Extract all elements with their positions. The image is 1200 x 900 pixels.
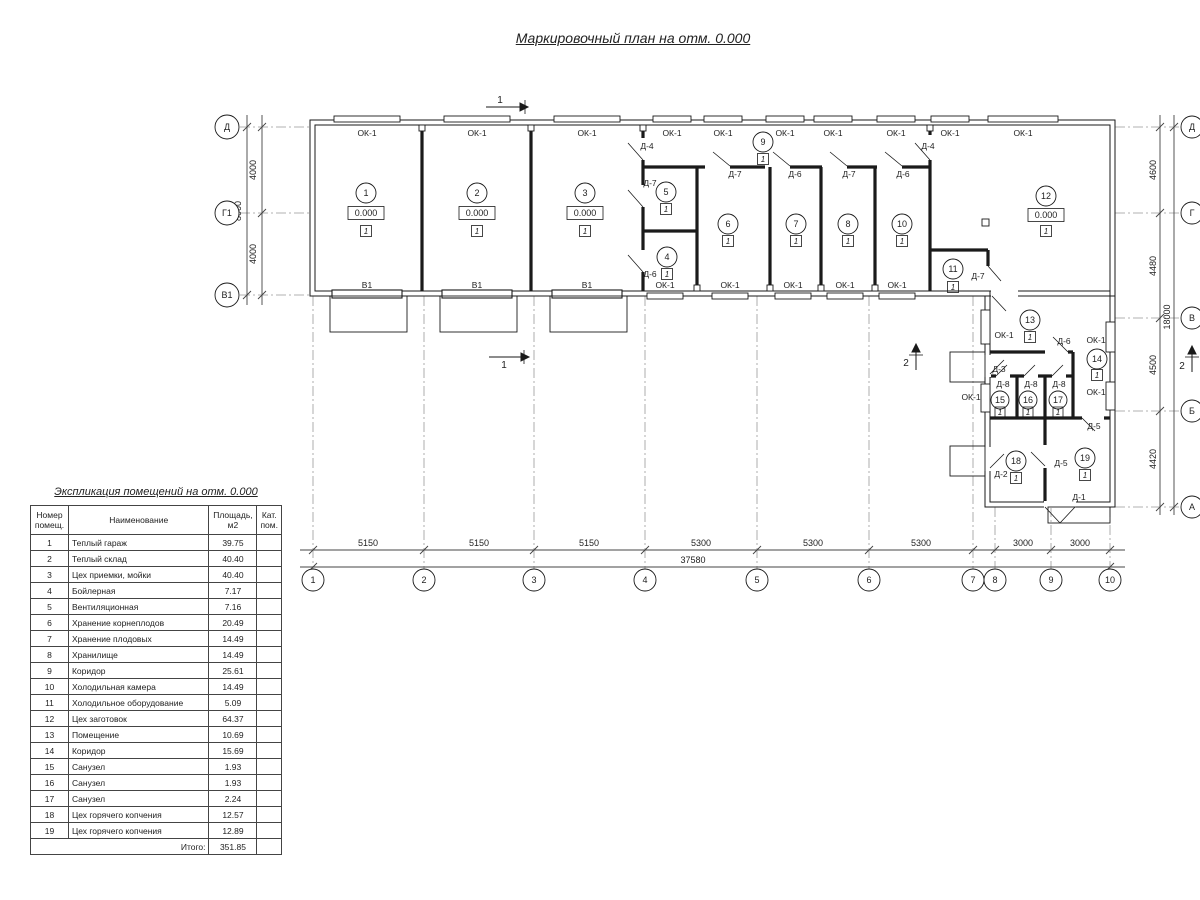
table-cell: Цех приемки, мойки <box>68 567 209 583</box>
table-cell: 12.89 <box>209 823 257 839</box>
table-row: 7Хранение плодовых14.49 <box>31 631 282 647</box>
table-cell: 15.69 <box>209 743 257 759</box>
svg-text:10: 10 <box>1105 575 1115 585</box>
svg-text:Б: Б <box>1189 406 1195 416</box>
window-label: ОК-1 <box>886 128 905 138</box>
window-label: ОК-1 <box>1086 387 1105 397</box>
svg-text:1: 1 <box>1044 227 1048 236</box>
gate-label: В1 <box>362 280 373 290</box>
svg-text:1: 1 <box>1083 471 1087 480</box>
table-cell <box>257 775 282 791</box>
svg-text:5150: 5150 <box>358 538 378 548</box>
door-label: Д-1 <box>1072 492 1086 502</box>
dimension-lines <box>243 115 1178 571</box>
table-cell: Санузел <box>68 775 209 791</box>
window-label: ОК-1 <box>994 330 1013 340</box>
table-cell: 7 <box>31 631 69 647</box>
window-label: ОК-1 <box>940 128 959 138</box>
table-row: 13Помещение10.69 <box>31 727 282 743</box>
table-cell: 7.17 <box>209 583 257 599</box>
door-label: Д-8 <box>1052 379 1066 389</box>
table-row: 9Коридор25.61 <box>31 663 282 679</box>
section-label: 2 <box>1179 361 1185 372</box>
svg-text:В1: В1 <box>221 290 232 300</box>
table-cell <box>257 807 282 823</box>
table-cell <box>257 647 282 663</box>
svg-text:5: 5 <box>754 575 759 585</box>
table-cell: 10.69 <box>209 727 257 743</box>
table-cell: Вентиляционная <box>68 599 209 615</box>
window-label: ОК-1 <box>835 280 854 290</box>
room-number: 13 <box>1025 315 1035 325</box>
room-number: 11 <box>948 264 957 274</box>
door-label: Д-6 <box>643 269 657 279</box>
svg-text:1: 1 <box>998 408 1002 417</box>
svg-text:1: 1 <box>1014 474 1018 483</box>
col-header-number: Номер помещ. <box>31 506 69 535</box>
gate-label: В1 <box>582 280 593 290</box>
table-cell: 5.09 <box>209 695 257 711</box>
elevation-value: 0.000 <box>1035 210 1058 220</box>
elevation-value: 0.000 <box>466 208 489 218</box>
table-cell: Санузел <box>68 791 209 807</box>
room-number: 8 <box>845 219 850 229</box>
svg-text:1: 1 <box>664 205 668 214</box>
door-label: Д-4 <box>640 141 654 151</box>
axis-bubbles: 1 2 3 4 5 6 7 8 9 10 Д Г В Б А Д Г1 В1 <box>215 115 1200 591</box>
window-label: ОК-1 <box>357 128 376 138</box>
table-cell <box>257 615 282 631</box>
svg-text:4600: 4600 <box>1148 160 1158 180</box>
table-cell <box>257 711 282 727</box>
table-row: 8Хранилище14.49 <box>31 647 282 663</box>
svg-text:5300: 5300 <box>803 538 823 548</box>
door-label: Д-7 <box>842 169 856 179</box>
table-cell: 25.61 <box>209 663 257 679</box>
table-cell: 11 <box>31 695 69 711</box>
svg-text:4000: 4000 <box>248 160 258 180</box>
table-row: 10Холодильная камера14.49 <box>31 679 282 695</box>
table-cell: 15 <box>31 759 69 775</box>
room-number: 18 <box>1011 456 1021 466</box>
table-cell: Цех горячего копчения <box>68 807 209 823</box>
room-markers <box>356 132 1107 471</box>
building-walls <box>310 120 1115 507</box>
svg-text:3000: 3000 <box>1070 538 1090 548</box>
table-cell: Санузел <box>68 759 209 775</box>
section-label: 1 <box>497 95 503 106</box>
col-header-category: Кат. пом. <box>257 506 282 535</box>
window-label: ОК-1 <box>961 392 980 402</box>
svg-text:1: 1 <box>1028 333 1032 342</box>
table-row: 18Цех горячего копчения12.57 <box>31 807 282 823</box>
dimension-labels: 5150 5150 5150 5300 5300 5300 3000 3000 … <box>233 160 1172 565</box>
table-cell <box>257 759 282 775</box>
table-row: 1Теплый гараж39.75 <box>31 535 282 551</box>
table-cell: Хранение плодовых <box>68 631 209 647</box>
table-cell: 40.40 <box>209 567 257 583</box>
svg-text:3000: 3000 <box>1013 538 1033 548</box>
svg-text:4: 4 <box>642 575 647 585</box>
svg-text:5150: 5150 <box>579 538 599 548</box>
table-cell: Помещение <box>68 727 209 743</box>
table-cell: Холодильная камера <box>68 679 209 695</box>
col-header-area: Площадь, м2 <box>209 506 257 535</box>
table-cell: 1.93 <box>209 775 257 791</box>
table-cell: 5 <box>31 599 69 615</box>
explication-table: Номер помещ. Наименование Площадь, м2 Ка… <box>30 505 282 855</box>
table-cell: 6 <box>31 615 69 631</box>
drawing-sheet: Маркировочный план на отм. 0.000 <box>0 0 1200 900</box>
room-number: 2 <box>474 188 479 198</box>
svg-text:4480: 4480 <box>1148 256 1158 276</box>
table-cell <box>257 727 282 743</box>
table-cell <box>257 823 282 839</box>
table-cell <box>257 695 282 711</box>
svg-text:2: 2 <box>421 575 426 585</box>
door-label: Д-6 <box>896 169 910 179</box>
table-cell: Коридор <box>68 663 209 679</box>
door-label: Д-5 <box>1054 458 1068 468</box>
table-row: 19Цех горячего копчения12.89 <box>31 823 282 839</box>
table-row: 12Цех заготовок64.37 <box>31 711 282 727</box>
svg-text:1: 1 <box>364 227 368 236</box>
table-cell <box>257 743 282 759</box>
svg-text:1: 1 <box>475 227 479 236</box>
table-cell: 17 <box>31 791 69 807</box>
window-label: ОК-1 <box>467 128 486 138</box>
svg-text:В: В <box>1189 313 1195 323</box>
room-number: 17 <box>1053 395 1063 405</box>
window-label: ОК-1 <box>887 280 906 290</box>
room-number: 14 <box>1092 354 1102 364</box>
svg-text:1: 1 <box>665 270 669 279</box>
table-cell <box>257 631 282 647</box>
svg-text:1: 1 <box>794 237 798 246</box>
svg-text:5300: 5300 <box>691 538 711 548</box>
table-cell: 12.57 <box>209 807 257 823</box>
table-cell: Цех заготовок <box>68 711 209 727</box>
svg-text:Д: Д <box>1189 122 1195 132</box>
door-label: Д-7 <box>643 178 657 188</box>
table-cell: 12 <box>31 711 69 727</box>
room-number: 4 <box>664 252 669 262</box>
door-label: Д-8 <box>996 379 1010 389</box>
elevation-marks: 0.000 0.000 0.000 0.000 <box>348 207 1064 222</box>
table-row: 16Санузел1.93 <box>31 775 282 791</box>
svg-text:5300: 5300 <box>911 538 931 548</box>
table-cell: Хранилище <box>68 647 209 663</box>
table-cell <box>257 535 282 551</box>
aprons-porches <box>330 296 1110 523</box>
room-number: 12 <box>1041 191 1051 201</box>
door-label: Д-7 <box>728 169 742 179</box>
table-cell: 14.49 <box>209 679 257 695</box>
svg-text:1: 1 <box>1095 371 1099 380</box>
gate-label: В1 <box>472 280 483 290</box>
svg-text:1: 1 <box>310 575 315 585</box>
table-cell <box>257 599 282 615</box>
table-header-row: Номер помещ. Наименование Площадь, м2 Ка… <box>31 506 282 535</box>
door-label: Д-3 <box>992 364 1006 374</box>
svg-text:А: А <box>1189 502 1195 512</box>
svg-text:5150: 5150 <box>469 538 489 548</box>
table-cell <box>257 791 282 807</box>
window-label: ОК-1 <box>713 128 732 138</box>
door-label: Д-2 <box>994 469 1008 479</box>
pilasters <box>419 125 989 291</box>
svg-text:1: 1 <box>726 237 730 246</box>
total-row: Итого: 351.85 <box>31 839 282 855</box>
table-cell: 2.24 <box>209 791 257 807</box>
table-cell: Теплый склад <box>68 551 209 567</box>
svg-text:18000: 18000 <box>1162 304 1172 329</box>
svg-text:4500: 4500 <box>1148 355 1158 375</box>
table-cell: 14.49 <box>209 631 257 647</box>
section-label: 2 <box>903 358 909 369</box>
table-row: 2Теплый склад40.40 <box>31 551 282 567</box>
svg-text:1: 1 <box>951 283 955 292</box>
room-number: 3 <box>582 188 587 198</box>
col-header-name: Наименование <box>68 506 209 535</box>
room-number: 9 <box>760 137 765 147</box>
window-label: ОК-1 <box>662 128 681 138</box>
total-label: Итого: <box>31 839 209 855</box>
svg-text:Г: Г <box>1190 208 1195 218</box>
window-label: ОК-1 <box>823 128 842 138</box>
svg-text:4420: 4420 <box>1148 449 1158 469</box>
svg-text:1: 1 <box>846 237 850 246</box>
door-label: Д-6 <box>788 169 802 179</box>
table-cell <box>257 679 282 695</box>
svg-text:37580: 37580 <box>680 555 705 565</box>
table-cell: 64.37 <box>209 711 257 727</box>
svg-text:1: 1 <box>583 227 587 236</box>
table-cell: 14.49 <box>209 647 257 663</box>
interior-walls <box>422 125 1110 502</box>
table-cell: 13 <box>31 727 69 743</box>
window-label: ОК-1 <box>655 280 674 290</box>
svg-text:9: 9 <box>1048 575 1053 585</box>
table-cell: 10 <box>31 679 69 695</box>
window-label: ОК-1 <box>577 128 596 138</box>
svg-text:1: 1 <box>761 155 765 164</box>
svg-text:7: 7 <box>970 575 975 585</box>
explication-body: 1Теплый гараж39.752Теплый склад40.403Цех… <box>31 535 282 839</box>
table-cell <box>257 583 282 599</box>
room-number: 19 <box>1080 453 1090 463</box>
column-mark <box>982 219 989 226</box>
gates <box>332 290 622 298</box>
explication-title: Экспликация помещений на отм. 0.000 <box>30 486 282 498</box>
table-cell: Цех горячего копчения <box>68 823 209 839</box>
table-cell: 20.49 <box>209 615 257 631</box>
table-row: 17Санузел2.24 <box>31 791 282 807</box>
door-label: Д-5 <box>1087 421 1101 431</box>
table-cell: 4 <box>31 583 69 599</box>
elevation-value: 0.000 <box>574 208 597 218</box>
svg-text:1: 1 <box>1056 408 1060 417</box>
table-cell: 40.40 <box>209 551 257 567</box>
window-label: ОК-1 <box>775 128 794 138</box>
door-label: Д-8 <box>1024 379 1038 389</box>
table-row: 5Вентиляционная7.16 <box>31 599 282 615</box>
table-cell: Коридор <box>68 743 209 759</box>
table-cell: 1 <box>31 535 69 551</box>
svg-text:Д: Д <box>224 122 230 132</box>
table-row: 15Санузел1.93 <box>31 759 282 775</box>
room-number: 16 <box>1023 395 1033 405</box>
table-cell: 8 <box>31 647 69 663</box>
table-cell: 9 <box>31 663 69 679</box>
table-cell: 39.75 <box>209 535 257 551</box>
room-number: 7 <box>793 219 798 229</box>
table-row: 6Хранение корнеплодов20.49 <box>31 615 282 631</box>
elevation-value: 0.000 <box>355 208 378 218</box>
door-label: Д-6 <box>1057 336 1071 346</box>
table-cell <box>257 663 282 679</box>
total-category <box>257 839 282 855</box>
total-value: 351.85 <box>209 839 257 855</box>
room-number: 6 <box>725 219 730 229</box>
door-label: Д-4 <box>921 141 935 151</box>
table-cell: 19 <box>31 823 69 839</box>
window-label: ОК-1 <box>1013 128 1032 138</box>
svg-text:3: 3 <box>531 575 536 585</box>
table-cell: Теплый гараж <box>68 535 209 551</box>
table-cell: Бойлерная <box>68 583 209 599</box>
room-number: 10 <box>897 219 907 229</box>
table-cell: 3 <box>31 567 69 583</box>
window-label: ОК-1 <box>783 280 802 290</box>
table-row: 4Бойлерная7.17 <box>31 583 282 599</box>
table-cell: Холодильное оборудование <box>68 695 209 711</box>
table-cell: 18 <box>31 807 69 823</box>
room-number: 15 <box>995 395 1005 405</box>
floor-marks: 1 1 1 1 1 1 1 1 1 1 1 1 1 1 1 1 1 1 1 <box>361 154 1103 484</box>
table-cell <box>257 551 282 567</box>
table-row: 3Цех приемки, мойки40.40 <box>31 567 282 583</box>
explication-block: Экспликация помещений на отм. 0.000 Номе… <box>30 486 282 855</box>
svg-text:8: 8 <box>992 575 997 585</box>
table-cell: Хранение корнеплодов <box>68 615 209 631</box>
table-cell: 16 <box>31 775 69 791</box>
section-label: 1 <box>501 360 507 371</box>
room-number: 5 <box>663 187 668 197</box>
window-label: ОК-1 <box>720 280 739 290</box>
table-row: 14Коридор15.69 <box>31 743 282 759</box>
svg-text:4000: 4000 <box>248 244 258 264</box>
svg-text:Г1: Г1 <box>222 208 232 218</box>
table-cell: 1.93 <box>209 759 257 775</box>
table-cell: 7.16 <box>209 599 257 615</box>
svg-text:6: 6 <box>866 575 871 585</box>
axis-grid-lines <box>240 127 1181 569</box>
door-label: Д-7 <box>971 271 985 281</box>
svg-text:1: 1 <box>900 237 904 246</box>
table-cell: 2 <box>31 551 69 567</box>
table-cell: 14 <box>31 743 69 759</box>
window-label: ОК-1 <box>1086 335 1105 345</box>
table-cell <box>257 567 282 583</box>
svg-text:1: 1 <box>1026 408 1030 417</box>
room-number: 1 <box>363 188 368 198</box>
table-row: 11Холодильное оборудование5.09 <box>31 695 282 711</box>
